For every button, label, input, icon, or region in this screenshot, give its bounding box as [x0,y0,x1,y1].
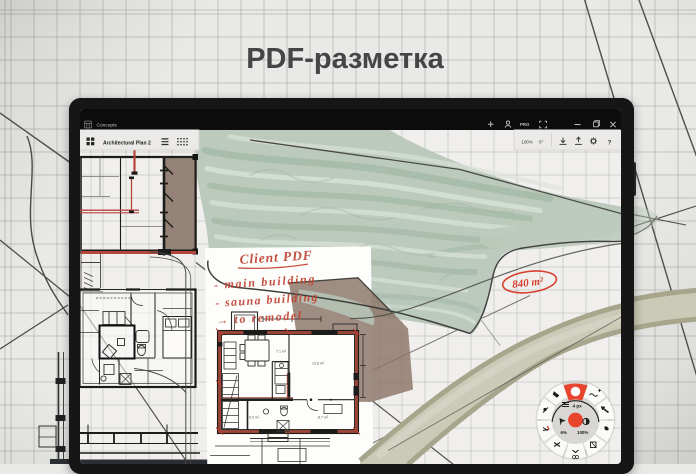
svg-text:13.8 m²: 13.8 m² [312,361,325,365]
svg-text:PRO: PRO [520,122,530,127]
svg-text:Architectural Plan 2: Architectural Plan 2 [103,140,151,146]
svg-text:6%: 6% [561,430,567,435]
svg-text:4 px: 4 px [573,403,583,408]
svg-text:840 m²: 840 m² [512,275,545,291]
svg-text:?: ? [608,140,612,147]
svg-text:5.0 m²: 5.0 m² [249,415,260,419]
svg-text:100%: 100% [577,430,588,435]
svg-text:0°: 0° [539,140,543,145]
svg-text:7.1 m²: 7.1 m² [276,349,287,353]
svg-text:8.7 m²: 8.7 m² [318,415,329,419]
svg-text:Concepts: Concepts [97,123,118,129]
svg-text:100%: 100% [522,140,533,145]
